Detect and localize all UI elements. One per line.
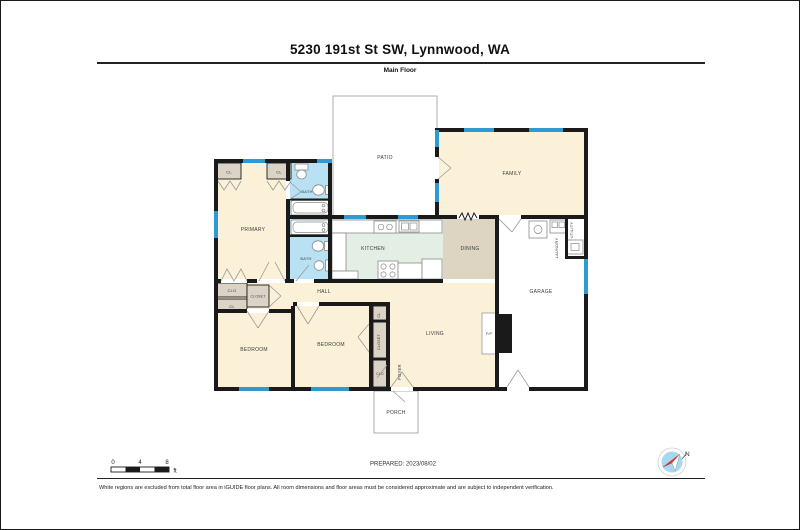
door-gap	[247, 309, 269, 313]
wall-segment	[328, 159, 332, 283]
room-label-bedroom-mid: BEDROOM	[317, 342, 345, 348]
wall-segment	[290, 199, 332, 201]
scale-tick-0: 0	[111, 460, 115, 466]
room-label-foyer: FOYER	[397, 364, 402, 380]
window	[584, 259, 588, 294]
wall-segment	[373, 358, 387, 361]
kitchen-counter-bottom	[398, 263, 422, 279]
stove	[378, 261, 398, 279]
door-gap	[297, 302, 319, 306]
room-label-bath-upper: BATH	[301, 189, 312, 194]
closet-label-clo-foyer: CLO	[376, 372, 384, 376]
closet-label-cl-hall: CL	[229, 304, 235, 309]
footer-divider	[97, 478, 705, 479]
door-gap	[499, 215, 521, 219]
door-gap	[507, 387, 529, 391]
footer-disclaimer: White regions are excluded from total fl…	[99, 485, 554, 491]
floorplan-page: 5230 191st St SW, Lynnwood, WA Main Floo…	[0, 0, 800, 530]
door-gap	[391, 387, 413, 391]
window	[435, 183, 439, 202]
scale-bar-segment	[155, 467, 170, 472]
window	[529, 128, 563, 132]
wall-segment	[290, 215, 332, 219]
wall-segment	[565, 219, 568, 257]
toilet-bowl-icon	[314, 261, 324, 271]
scale-tick-8: 8	[165, 460, 169, 466]
wall-segment	[214, 159, 218, 391]
wall-segment	[214, 159, 332, 163]
room-label-primary: PRIMARY	[241, 227, 266, 233]
door-gap	[257, 279, 285, 283]
room-label-utility: UTILITY	[569, 222, 574, 239]
room-label-porch: PORCH	[386, 410, 405, 416]
kitchen-sink	[399, 221, 419, 232]
wall-segment	[386, 302, 390, 391]
floorplan-drawing: PATIO FAMILY PRIMARY KITCHEN DINING GARA…	[1, 1, 800, 530]
room-label-living: LIVING	[426, 331, 444, 337]
closet-label-cl-top-right: CL	[276, 170, 282, 175]
window	[464, 128, 494, 132]
closet-label-cl-top-left: CL	[226, 170, 232, 175]
bath-sink-icon	[312, 241, 324, 251]
room-label-bath-lower: BATH	[300, 256, 311, 261]
toilet-tank-icon	[295, 164, 308, 170]
window	[311, 387, 349, 391]
room-label-bedroom-left: BEDROOM	[240, 347, 268, 353]
primary-room-fill	[218, 163, 286, 279]
room-label-kitchen: KITCHEN	[361, 246, 385, 252]
washer-icon	[529, 221, 547, 238]
room-label-laundry: LAUNDRY	[554, 238, 559, 259]
wall-segment	[290, 235, 332, 238]
closet-label-closet-hall: CLOSET	[250, 295, 265, 299]
label-fireplace: F/P	[486, 332, 493, 336]
window	[398, 215, 418, 219]
refrigerator	[422, 259, 442, 279]
wall-segment	[495, 215, 499, 391]
bath-sink-icon	[313, 185, 325, 195]
scale-bar: 0 4 8 ft	[111, 460, 177, 475]
wall-segment	[369, 302, 373, 391]
kitchen-counter-left	[332, 233, 346, 271]
closet-label-closet-col: CLOSET	[377, 334, 381, 350]
room-label-patio: PATIO	[377, 155, 393, 161]
window	[239, 387, 269, 391]
toilet-bowl-icon	[297, 170, 307, 179]
window	[344, 215, 366, 219]
room-label-hall: HALL	[317, 289, 331, 295]
closet-label-cl-col: CL	[377, 312, 381, 317]
wall-segment	[291, 306, 295, 391]
compass: N	[658, 448, 690, 476]
window	[317, 159, 332, 163]
prepared-date: PREPARED: 2023/08/02	[370, 462, 437, 468]
scale-tick-4: 4	[138, 460, 142, 466]
closet-label-clo-hall: CLO	[228, 288, 237, 293]
wall-segment	[438, 128, 588, 132]
room-label-garage: GARAGE	[530, 289, 553, 295]
door-gap	[435, 157, 439, 179]
scale-bar-segment	[126, 467, 141, 472]
room-label-dining: DINING	[461, 246, 480, 252]
kitchen-counter-corner	[332, 271, 358, 279]
cooktop	[374, 221, 396, 233]
window	[214, 211, 218, 238]
utility-appliance-icon	[567, 240, 583, 254]
window	[435, 130, 439, 147]
wall-segment	[286, 159, 290, 283]
wall-segment	[373, 320, 387, 323]
room-label-family: FAMILY	[503, 171, 522, 177]
window	[243, 159, 265, 163]
scale-unit: ft	[173, 469, 177, 475]
